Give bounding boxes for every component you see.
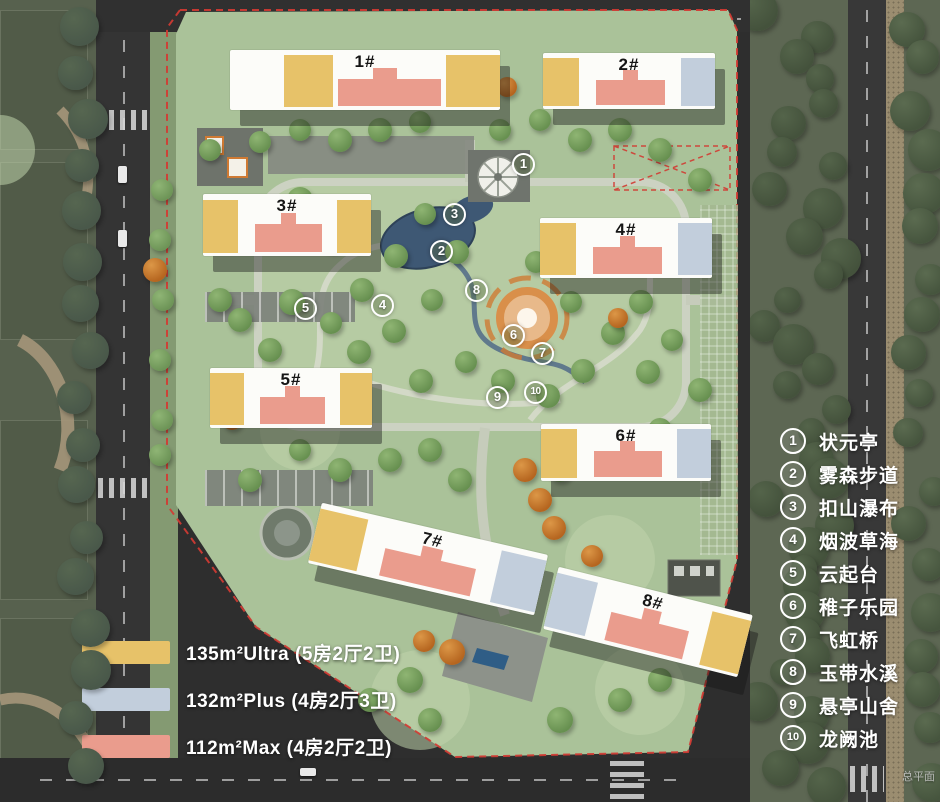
tree-icon [629,290,653,314]
map-marker-2[interactable]: 2 [430,240,453,263]
poi-number-badge: 3 [780,494,806,520]
east-kiosk [668,560,720,596]
tree-icon [890,91,930,131]
tree-icon [648,668,672,692]
tree-icon [378,448,402,472]
tree-icon [608,308,628,328]
tree-icon [58,466,95,503]
tree-icon [919,477,940,506]
tree-icon [448,468,472,492]
tree-icon [199,139,221,161]
poi-item-10: 10龙阙池 [780,725,899,751]
poi-item-1: 1状元亭 [780,428,899,454]
tree-icon [413,630,435,652]
poi-number-badge: 4 [780,527,806,553]
poi-number-badge: 2 [780,461,806,487]
tree-icon [771,106,806,141]
poi-label: 烟波草海 [819,527,899,554]
building-2-label: 2# [543,55,715,75]
tree-icon [568,128,592,152]
tree-icon [151,179,173,201]
tree-icon [71,609,109,647]
poi-label: 云起台 [819,560,879,587]
poi-item-6: 6稚子乐园 [780,593,899,619]
tree-icon [911,593,940,632]
unit-legend: 135m²Ultra (5房2厅2卫)132m²Plus (4房2厅3卫)112… [82,641,400,782]
unit-type-label: 112m²Max (4房2厅2卫) [186,733,392,760]
tree-icon [752,172,787,207]
parking-strip [205,470,373,506]
tree-icon [648,138,672,162]
playground [487,278,567,358]
poi-number-badge: 6 [780,593,806,619]
tree-icon [65,149,98,182]
tree-icon [151,409,173,431]
tree-icon [912,548,940,581]
tree-icon [63,243,101,281]
unit-type-label: 132m²Plus (4房2厅3卫) [186,686,397,713]
tree-icon [249,131,271,153]
map-marker-4[interactable]: 4 [371,294,394,317]
building-1[interactable]: 1# [230,50,500,110]
tree-icon [905,379,933,407]
tree-icon [906,40,940,74]
tree-icon [809,89,838,118]
poi-number-badge: 8 [780,659,806,685]
tree-icon [601,321,625,345]
tree-icon [905,672,940,707]
tree-icon [915,264,940,295]
tree-icon [421,289,443,311]
north-road [96,0,756,32]
poi-label: 状元亭 [819,428,879,455]
tree-icon [802,353,833,384]
poi-item-8: 8玉带水溪 [780,659,899,685]
parking-strip [205,292,355,322]
tree-icon [152,289,174,311]
map-marker-10[interactable]: 10 [524,381,547,404]
tree-icon [149,349,171,371]
building-6[interactable]: 6# [541,424,711,481]
tree-icon [513,458,537,482]
map-marker-7[interactable]: 7 [531,342,554,365]
tree-icon [382,319,406,343]
tree-icon [814,260,843,289]
poi-number-badge: 7 [780,626,806,652]
poi-legend: 1状元亭2雾森步道3扣山瀑布4烟波草海5云起台6稚子乐园7飞虹桥8玉带水溪9悬亭… [780,428,899,758]
tree-icon [774,287,800,313]
pond [374,189,497,278]
tree-icon [418,708,442,732]
tree-icon [608,118,632,142]
building-8[interactable]: 8# [543,567,753,677]
tree-icon [439,639,465,665]
poi-item-9: 9悬亭山舍 [780,692,899,718]
tree-icon [608,688,632,712]
tree-icon [688,168,712,192]
building-1-label: 1# [230,52,500,72]
unit-legend-row-1: 135m²Ultra (5房2厅2卫) [82,641,400,664]
tree-icon [289,119,311,141]
car-icon [118,166,127,183]
tree-icon [560,291,582,313]
building-4[interactable]: 4# [540,218,712,278]
tree-icon [571,359,595,383]
poi-label: 飞虹桥 [819,626,879,653]
poi-item-5: 5云起台 [780,560,899,586]
tree-icon [409,369,433,393]
round-plaza [261,507,313,559]
tree-icon [904,297,939,332]
building-5-label: 5# [210,370,372,390]
unit-type-label: 135m²Ultra (5房2厅2卫) [186,639,400,666]
tree-icon [384,244,408,268]
tree-icon [149,229,171,251]
poi-item-4: 4烟波草海 [780,527,899,553]
tree-icon [71,650,111,690]
tree-icon [409,111,431,133]
tree-icon [819,152,847,180]
building-6-label: 6# [541,426,711,446]
tree-icon [767,137,797,167]
poi-label: 扣山瀑布 [819,494,899,521]
tree-icon [72,332,109,369]
poi-label: 悬亭山舍 [819,692,899,719]
tree-icon [547,707,573,733]
poi-label: 玉带水溪 [819,659,899,686]
unit-legend-row-2: 132m²Plus (4房2厅3卫) [82,688,400,711]
tree-icon [258,338,282,362]
tree-icon [786,218,823,255]
tree-icon [289,439,311,461]
tree-icon [58,56,93,91]
map-marker-5[interactable]: 5 [294,297,317,320]
tree-icon [497,77,517,97]
tree-icon [750,0,778,31]
tree-icon [636,360,660,384]
building-4-label: 4# [540,220,712,240]
tree-icon [891,335,925,369]
east-gate-markings [614,146,730,190]
tree-icon [418,438,442,462]
poi-number-badge: 1 [780,428,806,454]
map-marker-6[interactable]: 6 [502,324,525,347]
tree-icon [542,516,566,540]
car-icon [118,230,127,247]
tree-icon [62,191,101,230]
building-5[interactable]: 5# [210,368,372,428]
poi-item-2: 2雾森步道 [780,461,899,487]
poi-item-7: 7飞虹桥 [780,626,899,652]
tree-icon [328,128,352,152]
tree-icon [57,381,91,415]
poi-number-badge: 5 [780,560,806,586]
poi-number-badge: 10 [780,725,806,751]
building-7[interactable]: 7# [308,503,548,616]
tree-icon [822,395,851,424]
poi-label: 雾森步道 [819,461,899,488]
unit-color-swatch [82,688,170,711]
tree-icon [904,639,938,673]
watermark-label: 总平面 [902,768,935,784]
tree-icon [807,767,846,802]
tree-icon [149,444,171,466]
tree-icon [661,329,683,351]
map-marker-8[interactable]: 8 [465,279,488,302]
unit-legend-row-3: 112m²Max (4房2厅2卫) [82,735,400,758]
map-marker-9[interactable]: 9 [486,386,509,409]
tree-icon [70,521,103,554]
south-gate-plaza [442,612,548,702]
site-plan-canvas: 1# 2# 3# 4# 5# 6# 7# 8# [0,0,940,802]
tree-icon [489,119,511,141]
tree-icon [750,682,778,721]
tree-icon [414,203,436,225]
tree-icon [902,208,938,244]
map-marker-3[interactable]: 3 [443,203,466,226]
north-promenade [268,136,474,174]
building-3[interactable]: 3# [203,194,371,256]
tree-icon [581,545,603,567]
poi-label: 稚子乐园 [819,593,899,620]
tree-icon [528,488,552,512]
tree-icon [68,748,104,784]
tree-icon [66,428,100,462]
tree-icon [529,109,551,131]
northwest-pavilion [197,128,263,186]
tree-icon [773,371,801,399]
tree-icon [455,351,477,373]
building-2[interactable]: 2# [543,53,715,109]
tree-icon [397,667,423,693]
tree-icon [347,340,371,364]
poi-number-badge: 9 [780,692,806,718]
tree-icon [914,712,940,744]
tree-icon [908,129,940,171]
tree-icon [68,99,108,139]
poi-item-3: 3扣山瀑布 [780,494,899,520]
tree-icon [368,118,392,142]
map-marker-1[interactable]: 1 [512,153,535,176]
poi-label: 龙阙池 [819,725,879,752]
building-3-label: 3# [203,196,371,216]
